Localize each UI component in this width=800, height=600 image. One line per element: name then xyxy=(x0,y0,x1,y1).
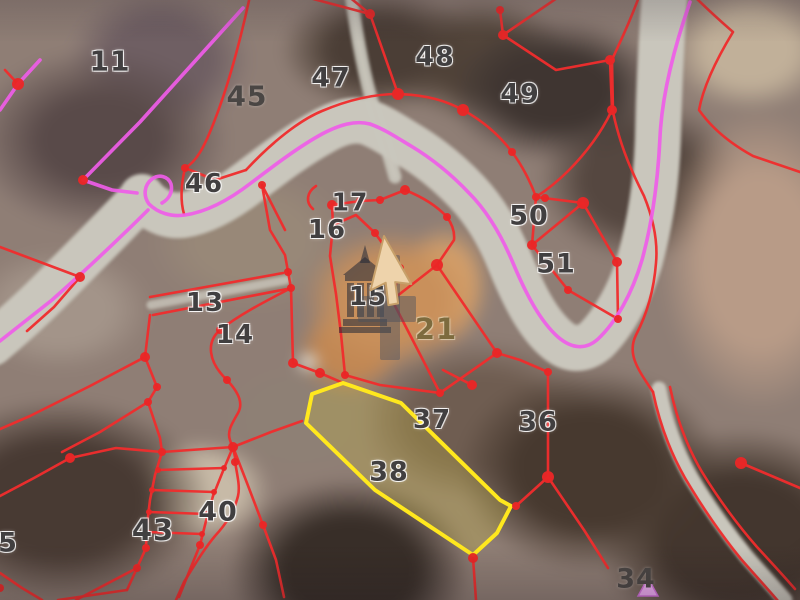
parcel-label-40: 40 xyxy=(198,497,238,528)
parcel-label-11: 11 xyxy=(90,45,131,78)
parcel-label-46: 46 xyxy=(185,169,223,199)
parcel-label-38: 38 xyxy=(369,457,409,488)
map-viewport[interactable]: 1145474849461716505113141521373638404334… xyxy=(0,0,800,600)
parcel-label-49: 49 xyxy=(500,79,540,110)
parcel-label-5: 5 xyxy=(0,528,18,559)
parcel-label-47: 47 xyxy=(311,63,351,94)
parcel-labels-layer: 1145474849461716505113141521373638404334… xyxy=(0,0,800,600)
parcel-label-36: 36 xyxy=(518,407,558,438)
parcel-label-34: 34 xyxy=(616,564,656,595)
parcel-label-37: 37 xyxy=(413,405,451,435)
parcel-label-15: 15 xyxy=(349,282,387,312)
parcel-label-17: 17 xyxy=(332,188,369,217)
parcel-label-21: 21 xyxy=(415,312,457,346)
parcel-label-48: 48 xyxy=(415,42,455,73)
parcel-label-51: 51 xyxy=(536,249,576,280)
parcel-label-14: 14 xyxy=(216,320,254,350)
parcel-label-45: 45 xyxy=(227,80,268,113)
parcel-label-50: 50 xyxy=(509,201,549,232)
parcel-label-16: 16 xyxy=(308,215,346,245)
parcel-label-43: 43 xyxy=(132,513,174,547)
parcel-label-13: 13 xyxy=(186,288,224,318)
